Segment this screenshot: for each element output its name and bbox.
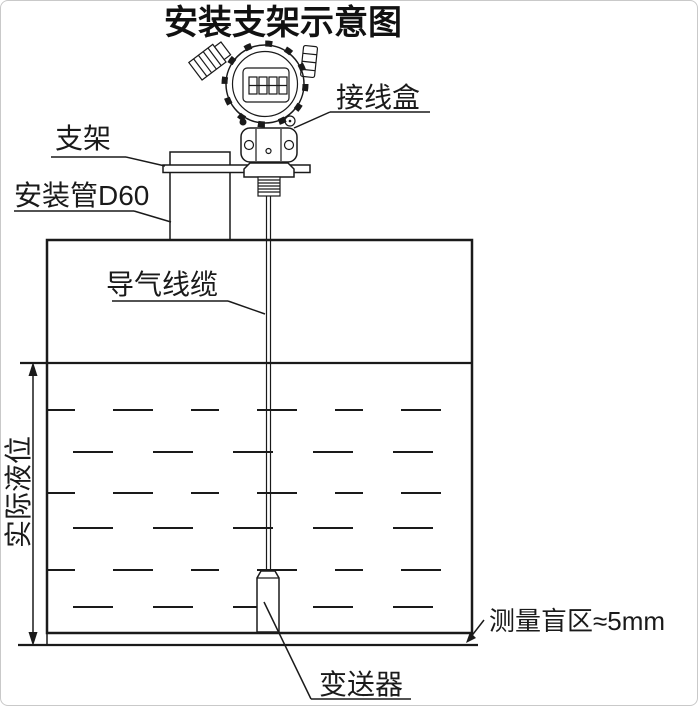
tank-drawing: [18, 240, 478, 646]
diagram-title: 安装支架示意图: [164, 4, 402, 42]
threaded-nipple-drawing: [258, 177, 280, 196]
actual-level-label: 实际液位: [3, 436, 34, 548]
mounting-pipe-label: 安装管D60: [14, 180, 149, 211]
probe-drawing: [257, 571, 279, 632]
blind-zone-label: 测量盲区≈5mm: [489, 606, 665, 636]
hex-nut-drawing: [244, 163, 294, 177]
screw-dot-icon: [240, 119, 247, 126]
transmitter-label: 变送器: [319, 669, 403, 700]
junction-box-label: 接线盒: [336, 82, 420, 113]
neck-adapter-drawing: [241, 128, 297, 162]
cable-gland-icon: [189, 40, 233, 80]
air-cable-label: 导气线缆: [106, 269, 218, 300]
installation-diagram: 安装支架示意图: [0, 0, 700, 708]
lcd-display-icon: [243, 68, 289, 102]
bracket-label: 支架: [55, 123, 111, 154]
air-cable-drawing: [267, 196, 271, 572]
